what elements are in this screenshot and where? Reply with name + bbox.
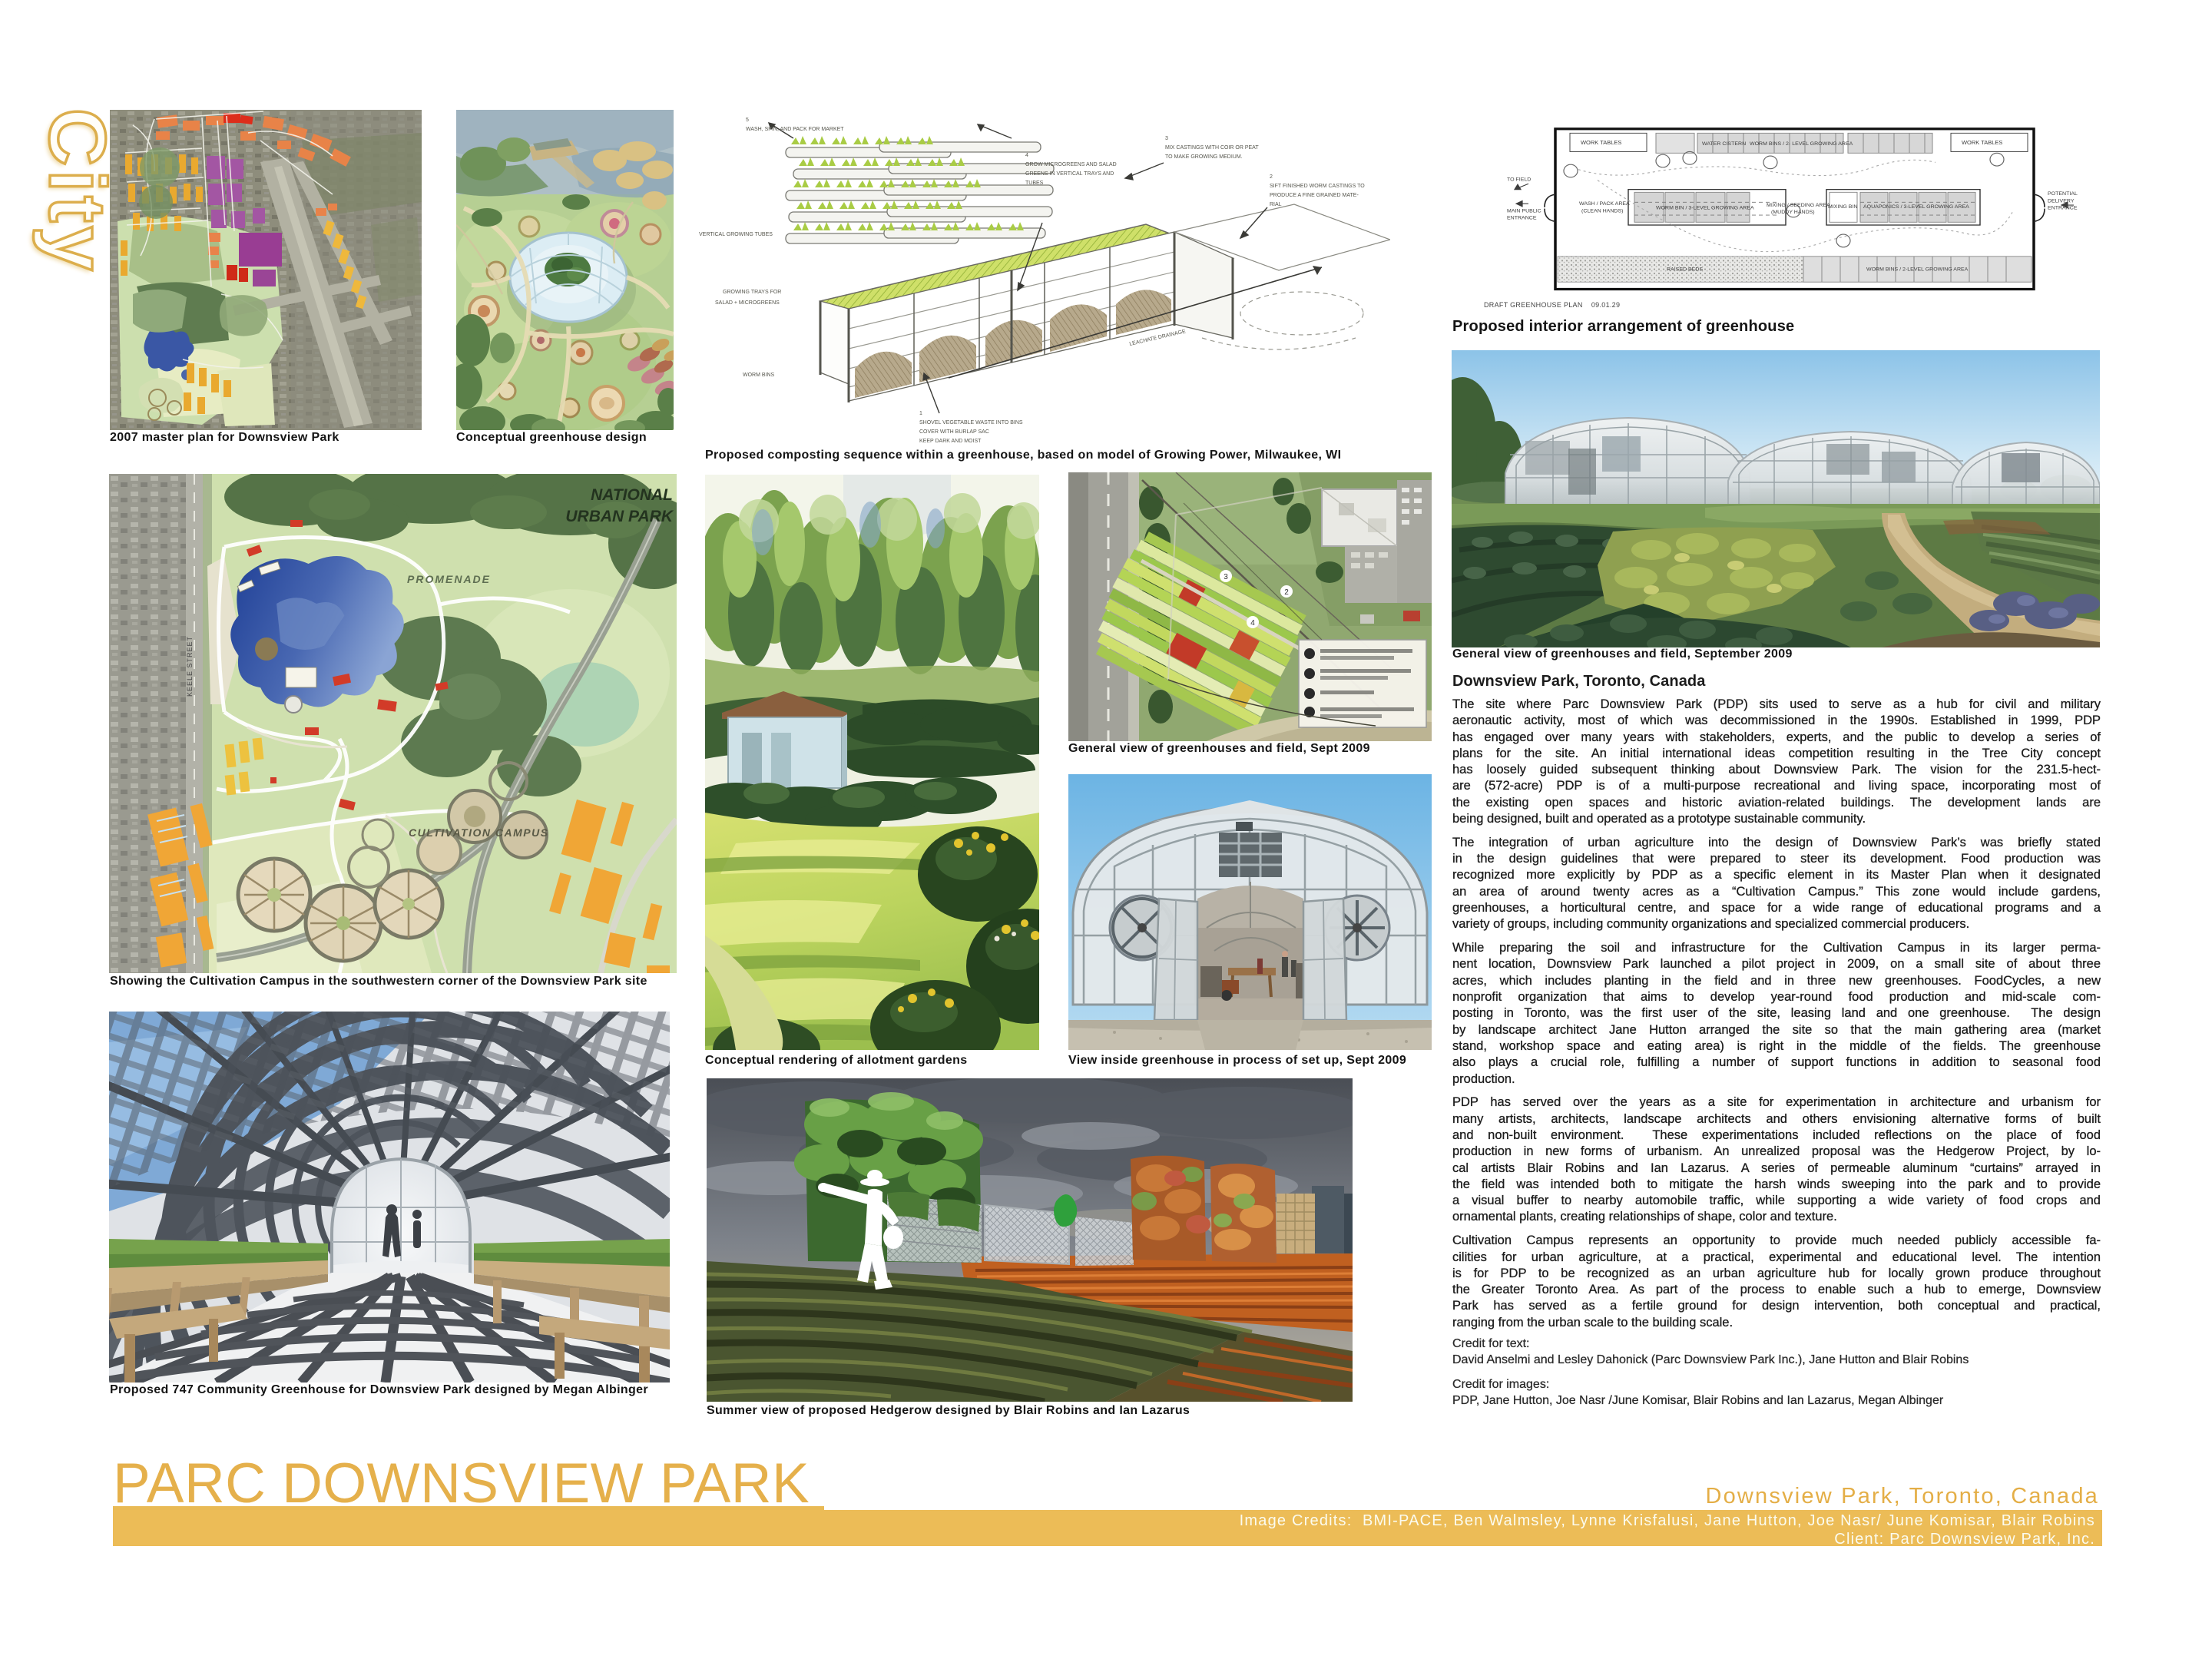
- svg-text:GROWING TRAYS FOR: GROWING TRAYS FOR: [723, 290, 781, 295]
- svg-text:MIXING / SEEDING AREA: MIXING / SEEDING AREA: [1767, 203, 1830, 208]
- svg-text:MIXING BIN: MIXING BIN: [1828, 204, 1858, 210]
- svg-text:VERTICAL GROWING TUBES: VERTICAL GROWING TUBES: [699, 232, 773, 237]
- svg-text:TUBES: TUBES: [1025, 180, 1044, 186]
- svg-text:WORM BINS / 2-LEVEL GROWING AR: WORM BINS / 2-LEVEL GROWING AREA: [1866, 267, 1969, 273]
- svg-text:ENTRANCE: ENTRANCE: [2048, 206, 2078, 211]
- svg-text:4: 4: [1250, 619, 1255, 628]
- svg-text:PROMENADE: PROMENADE: [407, 573, 491, 585]
- svg-text:MAIN PUBLIC: MAIN PUBLIC: [1507, 209, 1541, 214]
- svg-text:WASH / PACK AREA: WASH / PACK AREA: [1579, 201, 1630, 207]
- svg-text:WASH, SPIN, AND PACK FOR MARKE: WASH, SPIN, AND PACK FOR MARKET: [746, 127, 844, 132]
- svg-text:WORK TABLES: WORK TABLES: [1962, 139, 2003, 146]
- svg-text:AQUAPONICS / 3-LEVEL GROWING A: AQUAPONICS / 3-LEVEL GROWING AREA: [1863, 204, 1969, 210]
- svg-text:RIAL: RIAL: [1270, 202, 1282, 207]
- svg-text:SALAD + MICROGREENS: SALAD + MICROGREENS: [715, 300, 780, 306]
- svg-text:KEEP DARK AND MOIST: KEEP DARK AND MOIST: [919, 439, 982, 444]
- svg-text:4: 4: [1025, 153, 1028, 158]
- svg-text:WATER CISTERN: WATER CISTERN: [1702, 141, 1746, 147]
- svg-text:TO MAKE GROWING MEDIUM.: TO MAKE GROWING MEDIUM.: [1165, 154, 1243, 160]
- svg-text:TO FIELD: TO FIELD: [1507, 177, 1531, 183]
- svg-text:2: 2: [1270, 174, 1273, 180]
- svg-text:GREENS IN VERTICAL TRAYS AND: GREENS IN VERTICAL TRAYS AND: [1025, 171, 1114, 177]
- svg-text:(MUDDY HANDS): (MUDDY HANDS): [1771, 210, 1815, 215]
- svg-text:GROW MICROGREENS AND SALAD: GROW MICROGREENS AND SALAD: [1025, 162, 1117, 167]
- svg-text:(CLEAN HANDS): (CLEAN HANDS): [1581, 209, 1623, 214]
- svg-text:WORK TABLES: WORK TABLES: [1581, 139, 1622, 146]
- svg-text:ENTRANCE: ENTRANCE: [1507, 216, 1537, 221]
- svg-text:1: 1: [919, 411, 922, 416]
- svg-text:WORM BINS / 2- LEVEL GROWING A: WORM BINS / 2- LEVEL GROWING AREA: [1750, 141, 1853, 147]
- svg-text:DELIVERY: DELIVERY: [2048, 199, 2075, 204]
- svg-text:3: 3: [1165, 136, 1168, 141]
- svg-text:WORM BINS: WORM BINS: [743, 373, 775, 378]
- svg-text:POTENTIAL: POTENTIAL: [2048, 191, 2078, 197]
- svg-text:SIFT FINISHED WORM CASTINGS TO: SIFT FINISHED WORM CASTINGS TO: [1270, 184, 1365, 189]
- svg-text:SHOVEL VEGETABLE WASTE INTO BI: SHOVEL VEGETABLE WASTE INTO BINS: [919, 420, 1023, 426]
- svg-text:PRODUCE A FINE GRAINED MATE-: PRODUCE A FINE GRAINED MATE-: [1270, 193, 1359, 198]
- svg-text:URBAN PARK: URBAN PARK: [565, 508, 674, 525]
- svg-text:NATIONAL: NATIONAL: [591, 486, 673, 504]
- svg-text:RAISED BEDS: RAISED BEDS: [1667, 267, 1704, 273]
- svg-text:5: 5: [746, 118, 749, 123]
- svg-text:COVER WITH BURLAP SAC: COVER WITH BURLAP SAC: [919, 429, 989, 435]
- svg-text:2: 2: [1284, 588, 1289, 597]
- svg-text:WORM BIN / 3-LEVEL GROWING ARE: WORM BIN / 3-LEVEL GROWING AREA: [1656, 206, 1754, 211]
- svg-text:KEELE STREET: KEELE STREET: [186, 636, 194, 697]
- svg-text:MIX CASTINGS WITH COIR OR PEAT: MIX CASTINGS WITH COIR OR PEAT: [1165, 145, 1259, 151]
- svg-text:CULTIVATION CAMPUS: CULTIVATION CAMPUS: [409, 826, 549, 839]
- svg-text:3: 3: [1224, 573, 1228, 581]
